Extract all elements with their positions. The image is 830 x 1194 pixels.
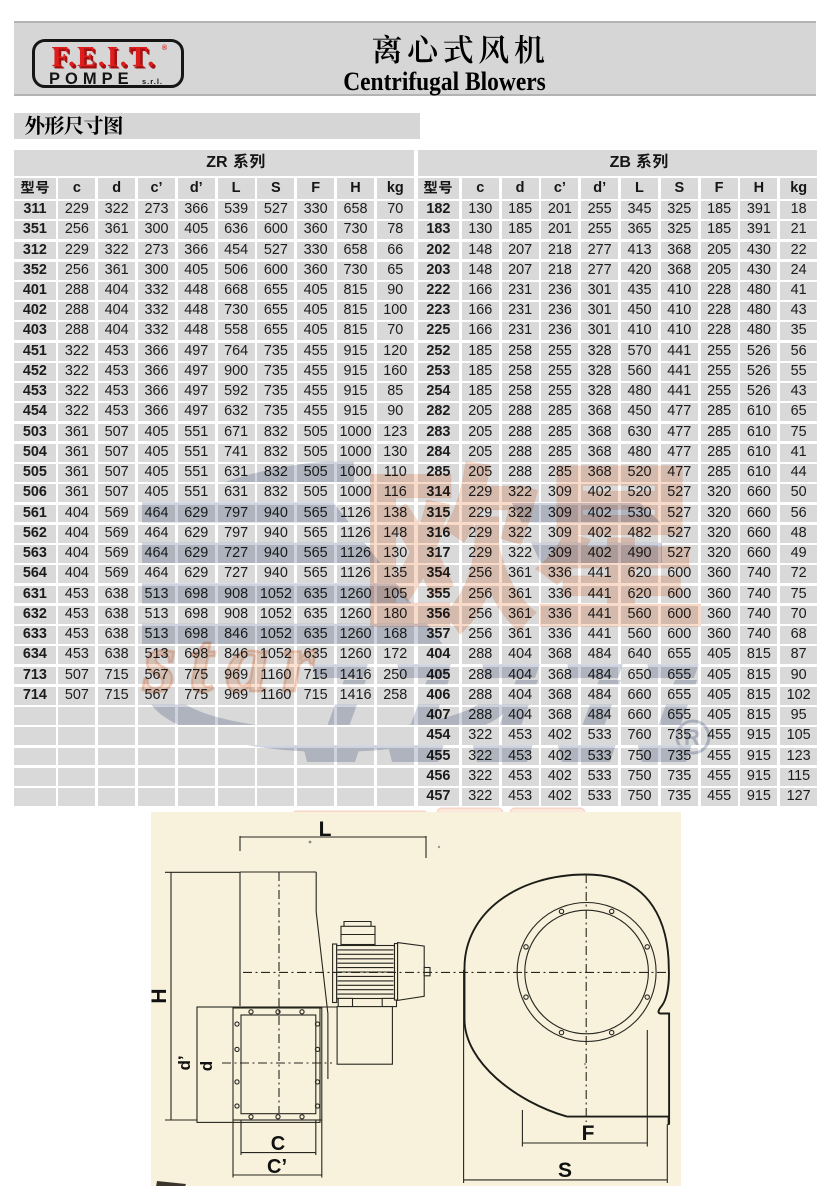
svg-text:H: H <box>151 988 171 1003</box>
svg-text:L: L <box>319 818 332 841</box>
svg-text:S: S <box>558 1159 572 1182</box>
svg-text:C’: C’ <box>267 1156 287 1178</box>
svg-text:star: star <box>142 614 317 710</box>
svg-text:C: C <box>271 1133 285 1155</box>
svg-text:d: d <box>197 1061 216 1071</box>
svg-text:F: F <box>582 1122 595 1145</box>
svg-text:d’: d’ <box>175 1055 194 1070</box>
